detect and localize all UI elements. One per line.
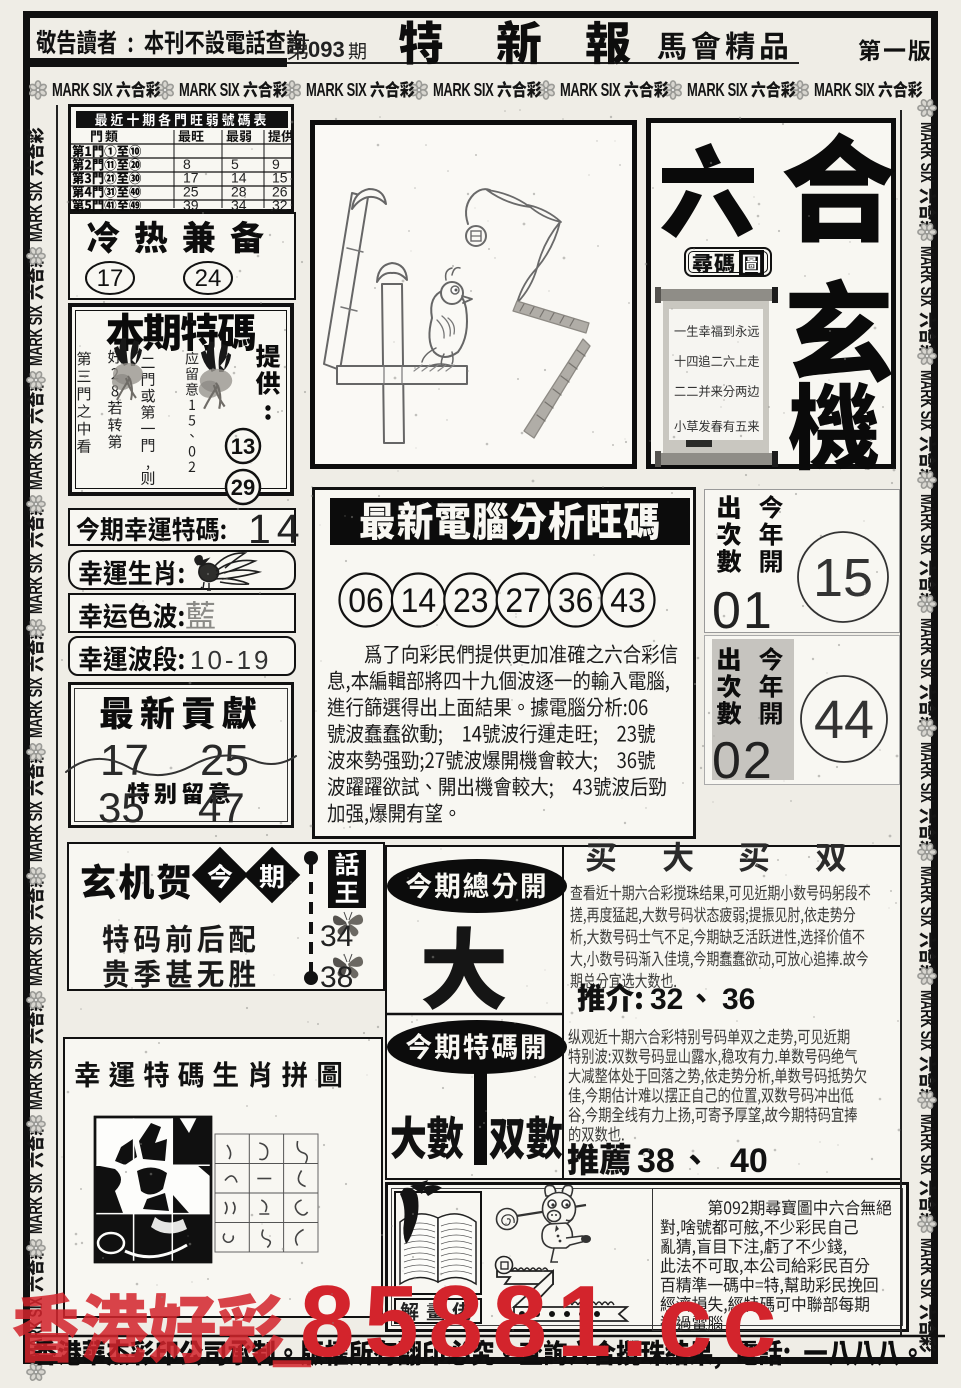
- svg-text:15: 15: [813, 548, 873, 608]
- svg-text:38: 38: [320, 961, 353, 994]
- svg-text:01: 01: [712, 582, 774, 640]
- svg-text:43: 43: [610, 581, 646, 619]
- svg-text:47: 47: [198, 784, 245, 831]
- svg-text:44: 44: [814, 690, 874, 750]
- svg-text:17: 17: [97, 265, 124, 292]
- svg-text:24: 24: [195, 265, 222, 292]
- svg-text:36: 36: [558, 581, 594, 619]
- svg-text:13: 13: [231, 434, 255, 459]
- svg-text:093: 093: [308, 37, 345, 62]
- svg-text:14: 14: [248, 506, 306, 552]
- svg-text:32: 32: [272, 197, 288, 213]
- svg-text:06: 06: [348, 581, 384, 619]
- svg-text:29: 29: [231, 475, 255, 500]
- svg-text:02: 02: [712, 732, 774, 790]
- svg-text:25: 25: [200, 736, 249, 785]
- svg-text:34: 34: [231, 197, 247, 213]
- svg-text:27: 27: [505, 581, 541, 619]
- svg-text:38: 38: [637, 1142, 675, 1180]
- svg-text:85881.cc: 85881.cc: [300, 1266, 786, 1379]
- svg-text:23: 23: [453, 581, 489, 619]
- svg-text:34: 34: [320, 920, 353, 953]
- svg-text:14: 14: [401, 581, 437, 619]
- svg-text:32: 32: [650, 983, 683, 1016]
- svg-text:10-19: 10-19: [190, 645, 272, 675]
- svg-text:40: 40: [730, 1142, 768, 1180]
- svg-text:35: 35: [98, 784, 145, 831]
- svg-text:39: 39: [183, 197, 199, 213]
